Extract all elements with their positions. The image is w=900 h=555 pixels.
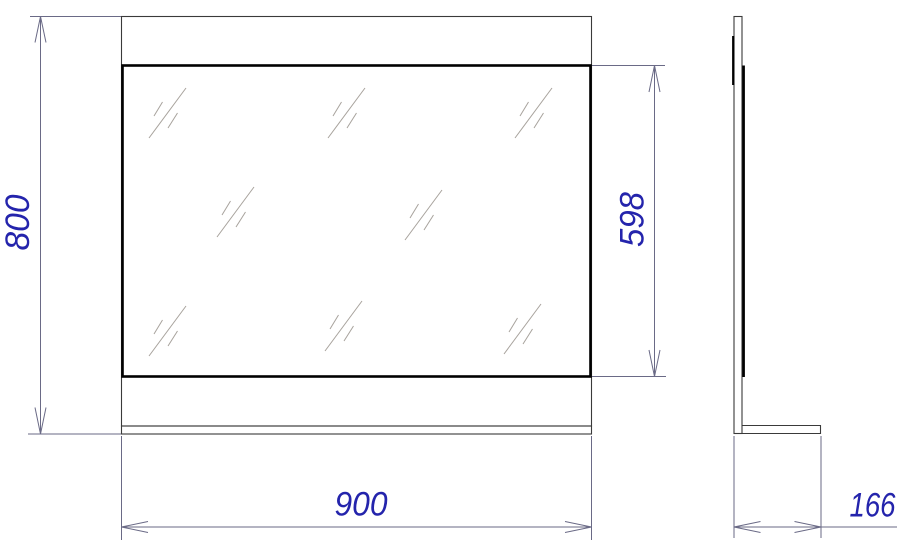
- svg-text:598: 598: [614, 192, 652, 247]
- svg-text:900: 900: [335, 486, 388, 524]
- svg-text:166: 166: [850, 487, 896, 525]
- svg-text:800: 800: [0, 194, 37, 250]
